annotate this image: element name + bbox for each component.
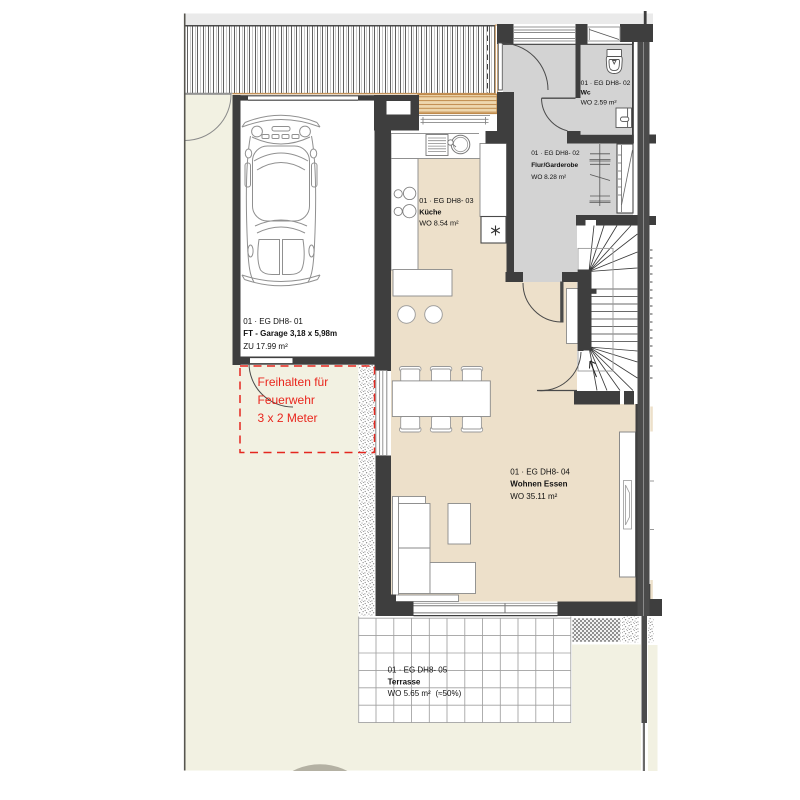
- svg-text:WO 8.28 m²: WO 8.28 m²: [531, 174, 567, 181]
- svg-text:Terrasse: Terrasse: [388, 677, 421, 686]
- svg-text:WO 5.65 m²: WO 5.65 m²: [388, 689, 431, 698]
- svg-text:Wc: Wc: [581, 90, 591, 97]
- svg-text:WO 2.59 m²: WO 2.59 m²: [581, 99, 618, 106]
- svg-text:Flur/Garderobe: Flur/Garderobe: [531, 162, 578, 169]
- svg-text:Küche: Küche: [419, 207, 441, 216]
- svg-text:Freihalten für: Freihalten für: [258, 375, 329, 389]
- svg-text:01 · EG DH8- 02: 01 · EG DH8- 02: [531, 150, 580, 157]
- svg-text:01 · EG DH8- 01: 01 · EG DH8- 01: [243, 317, 303, 326]
- svg-text:Wohnen Essen: Wohnen Essen: [510, 480, 567, 489]
- svg-text:ZU 17.99 m²: ZU 17.99 m²: [243, 342, 288, 351]
- svg-text:01 · EG DH8- 05: 01 · EG DH8- 05: [388, 665, 448, 674]
- svg-text:(≈50%): (≈50%): [436, 689, 462, 698]
- svg-text:WO 8.54 m²: WO 8.54 m²: [419, 219, 459, 228]
- svg-text:FT - Garage 3,18 x 5,98m: FT - Garage 3,18 x 5,98m: [243, 329, 337, 338]
- svg-text:3 x 2 Meter: 3 x 2 Meter: [258, 411, 318, 425]
- svg-text:WO 35.11 m²: WO 35.11 m²: [510, 492, 557, 501]
- svg-text:01 · EG DH8- 02: 01 · EG DH8- 02: [581, 80, 631, 87]
- svg-text:01 · EG DH8- 04: 01 · EG DH8- 04: [510, 467, 570, 476]
- svg-text:01 · EG DH8- 03: 01 · EG DH8- 03: [419, 196, 473, 205]
- svg-text:Feuerwehr: Feuerwehr: [258, 393, 315, 407]
